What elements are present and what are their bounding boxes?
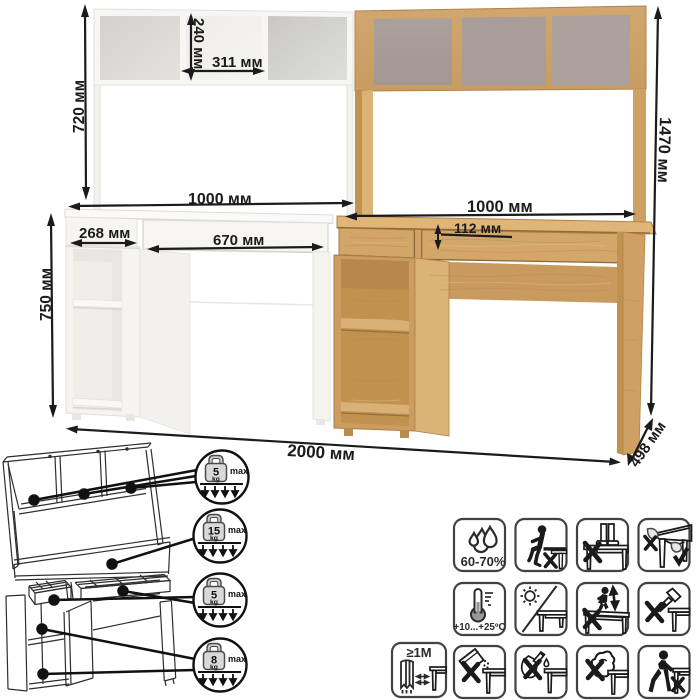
svg-text:268 мм: 268 мм <box>79 225 130 242</box>
svg-text:720 мм: 720 мм <box>71 80 88 133</box>
svg-text:112 мм: 112 мм <box>454 220 501 236</box>
svg-text:max: max <box>228 525 246 535</box>
svg-text:670 мм: 670 мм <box>213 232 264 249</box>
svg-text:max: max <box>228 654 246 664</box>
svg-text:1470 мм: 1470 мм <box>654 117 674 183</box>
svg-text:kg: kg <box>210 535 218 542</box>
svg-text:max: max <box>230 466 248 476</box>
svg-text:60-70%: 60-70% <box>461 554 506 569</box>
svg-text:kg: kg <box>212 476 220 483</box>
svg-text:kg: kg <box>210 664 218 671</box>
svg-text:max: max <box>228 589 246 599</box>
svg-text:kg: kg <box>210 599 218 606</box>
svg-text:≥1M: ≥1M <box>406 645 431 660</box>
svg-text:750 мм: 750 мм <box>38 268 55 321</box>
svg-text:+10...+25ºC: +10...+25ºC <box>453 622 505 633</box>
svg-text:240 мм: 240 мм <box>190 18 207 69</box>
svg-text:1000 мм: 1000 мм <box>467 198 533 216</box>
